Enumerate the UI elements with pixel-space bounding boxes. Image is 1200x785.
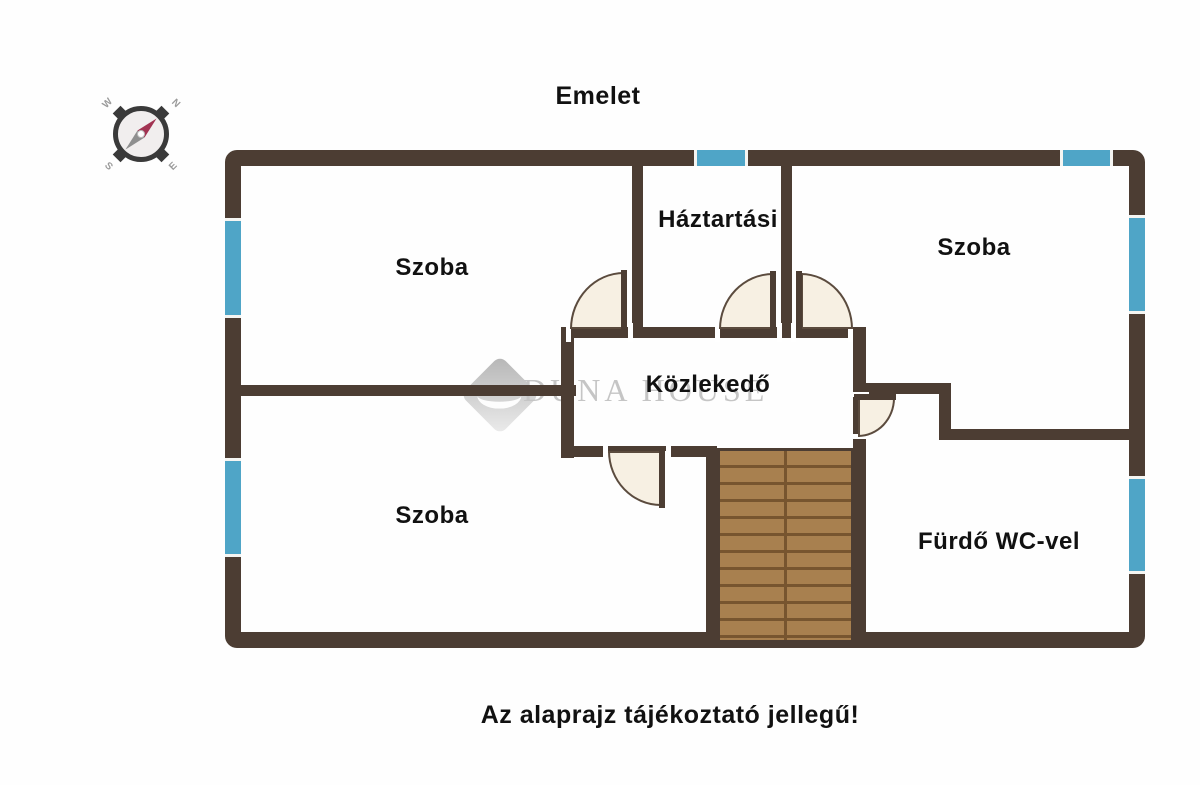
window-left-upper xyxy=(225,218,241,318)
wall-kozlekedo-left xyxy=(561,327,574,458)
window-right-lower xyxy=(1129,476,1145,574)
door-leaf-furdo xyxy=(854,394,896,400)
window-right-upper xyxy=(1129,215,1145,314)
wall-furdo-top-right xyxy=(939,429,1142,440)
window-left-lower xyxy=(225,458,241,557)
wall-partition-haztartasi-szoba xyxy=(781,164,792,331)
compass-letter-n: N xyxy=(169,97,182,110)
window-top-right-szoba xyxy=(1060,150,1113,166)
room-label-szoba-bottom-left: Szoba xyxy=(395,502,468,530)
compass-icon: W N S E xyxy=(103,96,179,172)
window-top-haztartasi xyxy=(694,150,748,166)
compass-letter-e: E xyxy=(167,160,179,172)
compass-center-dot-icon xyxy=(137,130,145,138)
wall-kozlekedo-bottom-left xyxy=(561,446,608,457)
stairs xyxy=(717,448,854,643)
door-leaf-szoba-bottom-left xyxy=(659,449,665,508)
floor-plan-page: Emelet Az alaprajz tájékoztató jellegű! … xyxy=(0,0,1200,785)
wall-partition-left-rooms xyxy=(241,385,576,396)
floor-title: Emelet xyxy=(556,82,641,111)
door-jamb xyxy=(666,443,671,460)
door-jamb xyxy=(777,323,782,342)
compass-letter-w: W xyxy=(100,96,114,110)
wall-stairs-left xyxy=(706,446,717,643)
door-leaf-haztartasi xyxy=(770,271,776,331)
disclaimer-text: Az alaprajz tájékoztató jellegű! xyxy=(481,701,860,730)
room-label-szoba-top-right: Szoba xyxy=(937,234,1010,262)
room-label-haztartasi: Háztartási xyxy=(658,206,778,234)
room-label-furdo: Fürdő WC-vel xyxy=(918,528,1080,556)
room-label-kozlekedo: Közlekedő xyxy=(646,371,771,399)
door-jamb xyxy=(628,323,633,342)
wall-kozlekedo-right xyxy=(853,327,866,643)
compass-letter-s: S xyxy=(102,160,114,172)
room-label-szoba-top-left: Szoba xyxy=(395,254,468,282)
door-leaf-szoba-top-left xyxy=(621,270,627,331)
wall-partition-szoba-haztartasi xyxy=(632,164,643,331)
door-leaf-szoba-top-right xyxy=(796,271,802,331)
